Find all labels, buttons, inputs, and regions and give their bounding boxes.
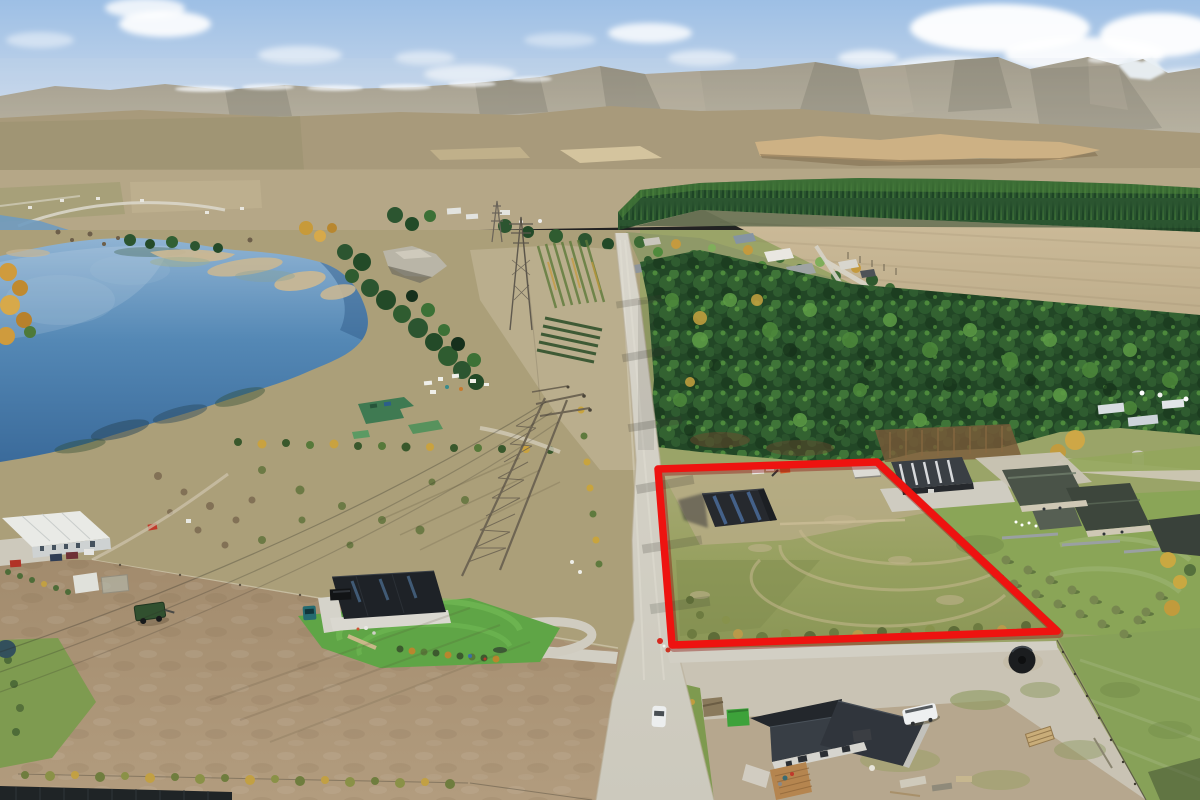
teal-car [303, 606, 317, 621]
white-shed [73, 572, 99, 593]
golden-tree [1065, 430, 1085, 450]
white-spec [186, 519, 191, 523]
white-car [651, 706, 666, 728]
distant-forest-belt [618, 178, 1200, 232]
water-tank [1009, 647, 1036, 674]
aerial-photo [0, 0, 1200, 800]
garden-shed [702, 697, 724, 717]
aerial-photo-canvas [0, 0, 1200, 800]
greenhouse [101, 575, 129, 594]
